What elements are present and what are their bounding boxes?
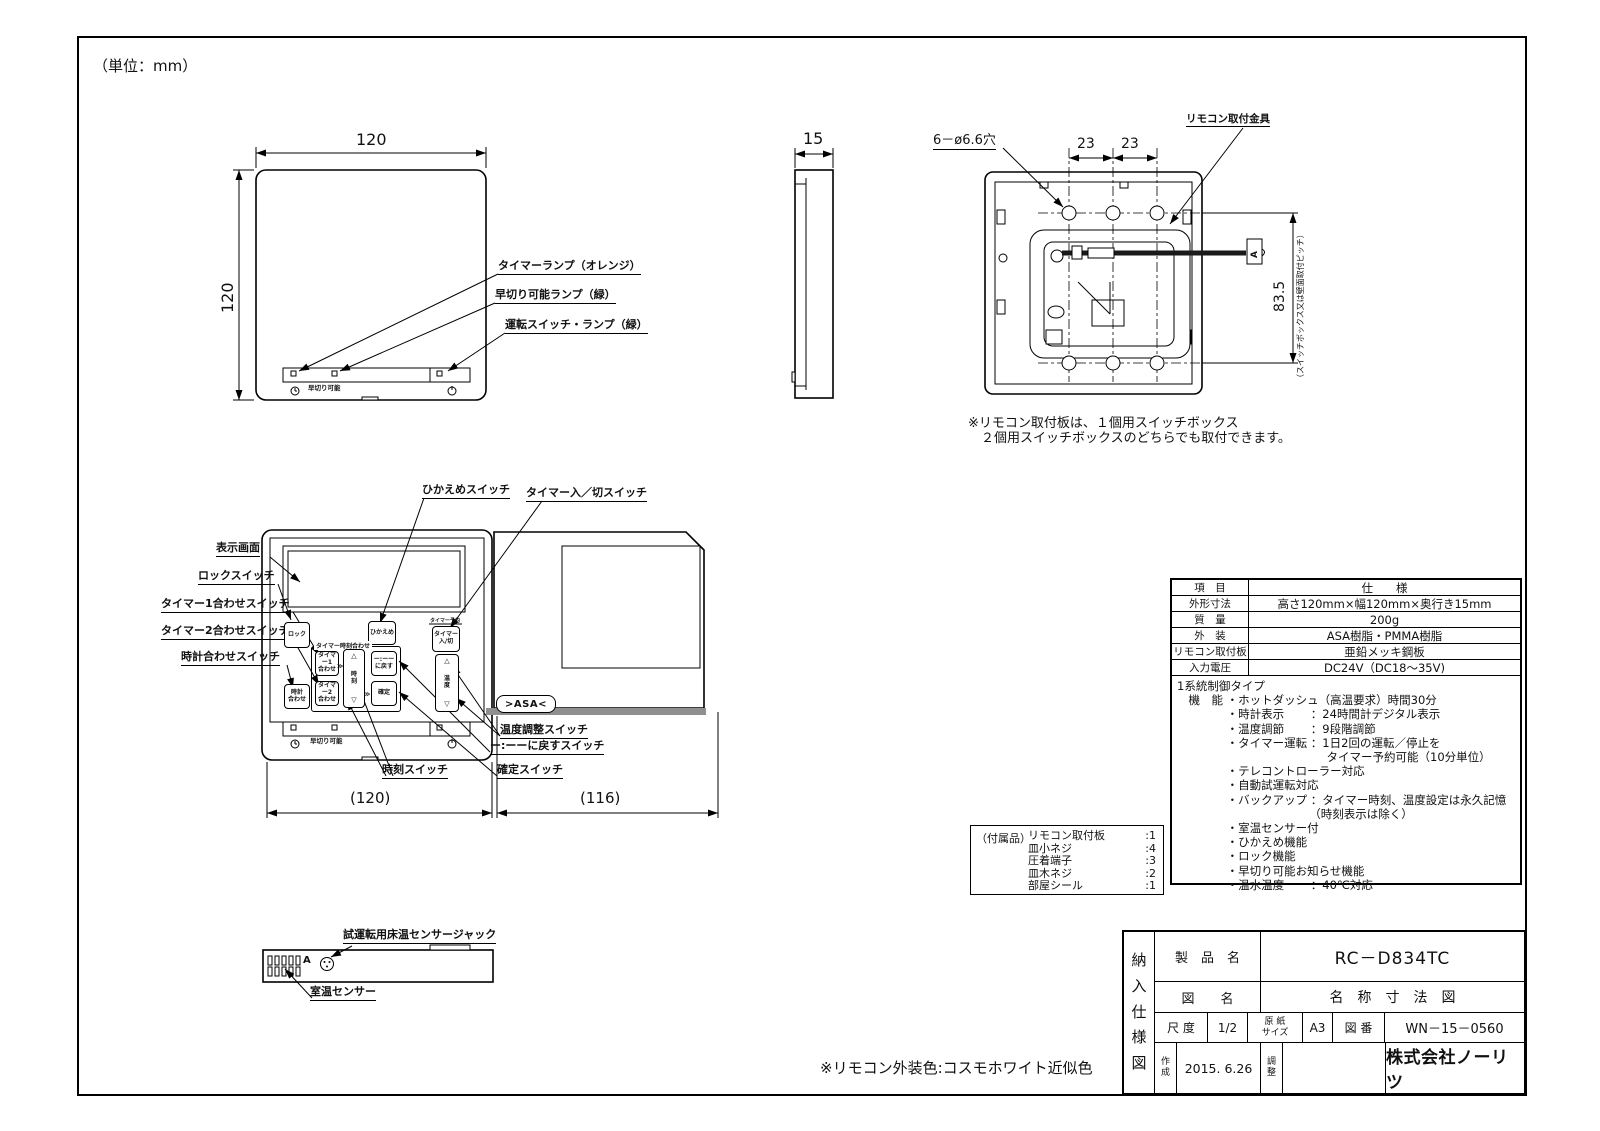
- rear-pitch-left: 23: [1077, 136, 1095, 153]
- time-button-label: 時刻: [351, 672, 357, 685]
- callout-timer-onoff: タイマー入／切スイッチ: [526, 487, 647, 502]
- spec-row-value: 高さ120mm×幅120mm×奥行き15mm: [1249, 596, 1520, 611]
- spec-rows: 外形寸法 高さ120mm×幅120mm×奥行き15mm 質 量 200g 外 装…: [1172, 596, 1520, 676]
- spec-row-item: 外形寸法: [1172, 596, 1249, 611]
- spec-row: 外 装 ASA樹脂・PMMA樹脂: [1172, 628, 1520, 644]
- front-dim-height: 120: [219, 282, 238, 313]
- accessory-name: リモコン取付板: [1028, 830, 1105, 843]
- title-block-side-strip: 納入仕様図: [1124, 932, 1155, 1093]
- bottom-view-lines: [263, 945, 493, 998]
- callout-temp: 温度調整スイッチ: [500, 724, 588, 739]
- connector-mark: A: [1250, 251, 1261, 258]
- adjust-value-blank: [1283, 1043, 1386, 1093]
- temp-up-icon[interactable]: △: [444, 658, 449, 665]
- spec-functions-text: 1系統制御タイプ 機 能 ・ホットダッシュ（高温要求）時間30分 ・時計表示 ：…: [1172, 676, 1520, 895]
- scale-value: 1/2: [1208, 1013, 1248, 1042]
- hikaeme-button[interactable]: ひかえめ: [368, 621, 396, 645]
- spec-row-item: 質 量: [1172, 612, 1249, 627]
- callout-confirm: 確定スイッチ: [497, 764, 563, 779]
- timer-onoff-button[interactable]: タイマー 入/切: [432, 626, 460, 652]
- product-name-label: 製 品 名: [1155, 932, 1261, 981]
- spec-row: 外形寸法 高さ120mm×幅120mm×奥行き15mm: [1172, 596, 1520, 612]
- panel-dim-body: (120): [350, 790, 390, 808]
- timer-clock-group-label: タイマー時刻合わせ: [314, 641, 372, 650]
- spec-table: 項 目 仕 様 外形寸法 高さ120mm×幅120mm×奥行き15mm 質 量 …: [1170, 578, 1522, 885]
- title-block: 納入仕様図 製 品 名 RC－D834TC 図 名 名 称 寸 法 図 尺 度 …: [1122, 930, 1526, 1095]
- created-label-text: 作成: [1161, 1057, 1170, 1079]
- rear-view-lines: [985, 128, 1298, 394]
- accessory-qty: :1: [1145, 830, 1156, 843]
- callout-room-sensor: 室温センサー: [310, 986, 376, 1001]
- spec-row-item: 外 装: [1172, 628, 1249, 643]
- sensor-jack-icon: [321, 958, 334, 971]
- exterior-color-note: ※リモコン外装色:コスモホワイト近似色: [820, 1060, 1093, 1078]
- accessory-name: 圧着端子: [1028, 855, 1072, 868]
- time-up-icon[interactable]: △: [351, 653, 356, 660]
- callout-early-lamp: 早切り可能ランプ（緑）: [495, 289, 616, 304]
- product-name-value: RC－D834TC: [1261, 932, 1524, 981]
- time-updown-button[interactable]: △ 時刻 ▽: [343, 649, 365, 708]
- created-date: 2015. 6.26: [1177, 1043, 1261, 1093]
- spec-row: リモコン取付板 亜鉛メッキ鋼板: [1172, 644, 1520, 660]
- front-strip-text: 早切り可能: [308, 385, 341, 393]
- spec-row-value: 亜鉛メッキ鋼板: [1249, 644, 1520, 659]
- chevron-1: ≫: [337, 663, 343, 670]
- asa-logo: >ASA<: [496, 695, 556, 713]
- spec-row-value: 200g: [1249, 612, 1520, 627]
- open-cover: [486, 532, 706, 715]
- rear-holes-label: 6－ø6.6穴: [933, 133, 996, 150]
- paper-size-value: A3: [1303, 1013, 1333, 1042]
- spec-header-item: 項 目: [1172, 580, 1249, 595]
- clock-set-button[interactable]: 時計 合わせ: [284, 684, 310, 709]
- callout-clock-set: 時計合わせスイッチ: [181, 651, 280, 666]
- reset-button[interactable]: ー:ーー に戻す: [371, 651, 397, 676]
- rear-bracket-label: リモコン取付金具: [1186, 113, 1270, 127]
- created-label: 作成: [1155, 1043, 1177, 1093]
- panel-strip-text: 早切り可能: [310, 738, 343, 746]
- drawing-name-value: 名 称 寸 法 図: [1261, 982, 1524, 1012]
- bottom-view-mark: A: [303, 955, 311, 967]
- drawing-number-label: 図 番: [1333, 1013, 1385, 1042]
- confirm-button[interactable]: 確定: [371, 681, 397, 706]
- callout-lock: ロックスイッチ: [198, 570, 275, 585]
- timer1-button[interactable]: タイマー1 合わせ: [315, 651, 339, 676]
- rear-dim-vertical-note: （スイッチボックス又は壁面取付ピッチ）: [1296, 230, 1305, 382]
- callout-time: 時刻スイッチ: [382, 764, 448, 779]
- time-down-icon[interactable]: ▽: [351, 697, 356, 704]
- spec-row-value: ASA樹脂・PMMA樹脂: [1249, 628, 1520, 643]
- title-block-side-label: 納入仕様図: [1131, 948, 1148, 1077]
- accessories-title: （付属品）: [976, 830, 1031, 846]
- scale-label: 尺 度: [1155, 1013, 1208, 1042]
- lock-button[interactable]: ロック: [284, 622, 310, 648]
- callout-hikaeme: ひかえめスイッチ: [422, 484, 510, 499]
- accessory-qty: :3: [1145, 855, 1156, 868]
- side-dim-depth: 15: [803, 130, 823, 149]
- timer2-button[interactable]: タイマー2 合わせ: [315, 681, 339, 706]
- spec-header-spec: 仕 様: [1249, 580, 1520, 595]
- company-logo: 株式会社ノーリツ: [1386, 1043, 1524, 1093]
- spec-header-row: 項 目 仕 様: [1172, 580, 1520, 596]
- front-view-lines: [233, 147, 505, 400]
- accessories-list: リモコン取付板 :1 皿小ネジ :4 圧着端子 :3 皿木ネジ :2: [1028, 830, 1156, 893]
- accessory-row: 圧着端子 :3: [1028, 855, 1156, 868]
- accessories-box: （付属品） リモコン取付板 :1 皿小ネジ :4 圧着端子 :3: [970, 825, 1164, 895]
- callout-reset: ー:ーーに戻すスイッチ: [490, 740, 604, 755]
- callout-timer-lamp: タイマーランプ（オレンジ）: [498, 260, 641, 275]
- callout-floor-sensor-jack: 試運転用床温センサージャック: [343, 929, 496, 944]
- callout-display: 表示画面: [216, 542, 260, 557]
- accessory-name: 部屋シール: [1028, 880, 1083, 893]
- rear-note: ※リモコン取付板は、１個用スイッチボックス ２個用スイッチボックスのどちらでも取…: [968, 416, 1291, 447]
- spec-row-value: DC24V（DC18～35V): [1249, 660, 1520, 675]
- side-view-lines: [792, 148, 833, 398]
- accessory-row: リモコン取付板 :1: [1028, 830, 1156, 843]
- callout-timer1: タイマー1合わせスイッチ: [161, 598, 290, 613]
- adjust-label-text: 調整: [1267, 1057, 1276, 1079]
- rear-dim-vertical: 83.5: [1272, 281, 1289, 312]
- spec-row-item: 入力電圧: [1172, 660, 1249, 675]
- drawing-sheet: .ln{stroke:#000;stroke-width:1;fill:none…: [0, 0, 1600, 1131]
- callout-power-lamp: 運転スイッチ・ランプ（緑）: [505, 319, 648, 334]
- accessory-row: 部屋シール :1: [1028, 880, 1156, 893]
- spec-row: 入力電圧 DC24V（DC18～35V): [1172, 660, 1520, 676]
- title-block-main: 製 品 名 RC－D834TC 図 名 名 称 寸 法 図 尺 度 1/2 原 …: [1155, 932, 1524, 1093]
- temp-updown-button[interactable]: △ 温度 ▽: [435, 654, 459, 712]
- temp-down-icon[interactable]: ▽: [444, 701, 449, 708]
- spec-row: 質 量 200g: [1172, 612, 1520, 628]
- accessory-qty: :1: [1145, 880, 1156, 893]
- adjust-label: 調整: [1261, 1043, 1283, 1093]
- drawing-number-value: WN－15－0560: [1385, 1013, 1524, 1042]
- callout-timer2: タイマー2合わせスイッチ: [161, 625, 290, 640]
- paper-size-label: 原 紙 サイズ: [1248, 1013, 1303, 1042]
- panel-dim-cover: (116): [580, 790, 620, 808]
- temp-button-label: 温度: [444, 676, 450, 689]
- spec-row-item: リモコン取付板: [1172, 644, 1249, 659]
- timer-onoff-tag: タイマー予約: [430, 617, 460, 624]
- front-dim-width: 120: [356, 131, 387, 150]
- rear-pitch-right: 23: [1121, 136, 1139, 153]
- drawing-name-label: 図 名: [1155, 982, 1261, 1012]
- chevron-2: ≫: [364, 691, 370, 698]
- unit-note: （単位：mm）: [93, 58, 197, 76]
